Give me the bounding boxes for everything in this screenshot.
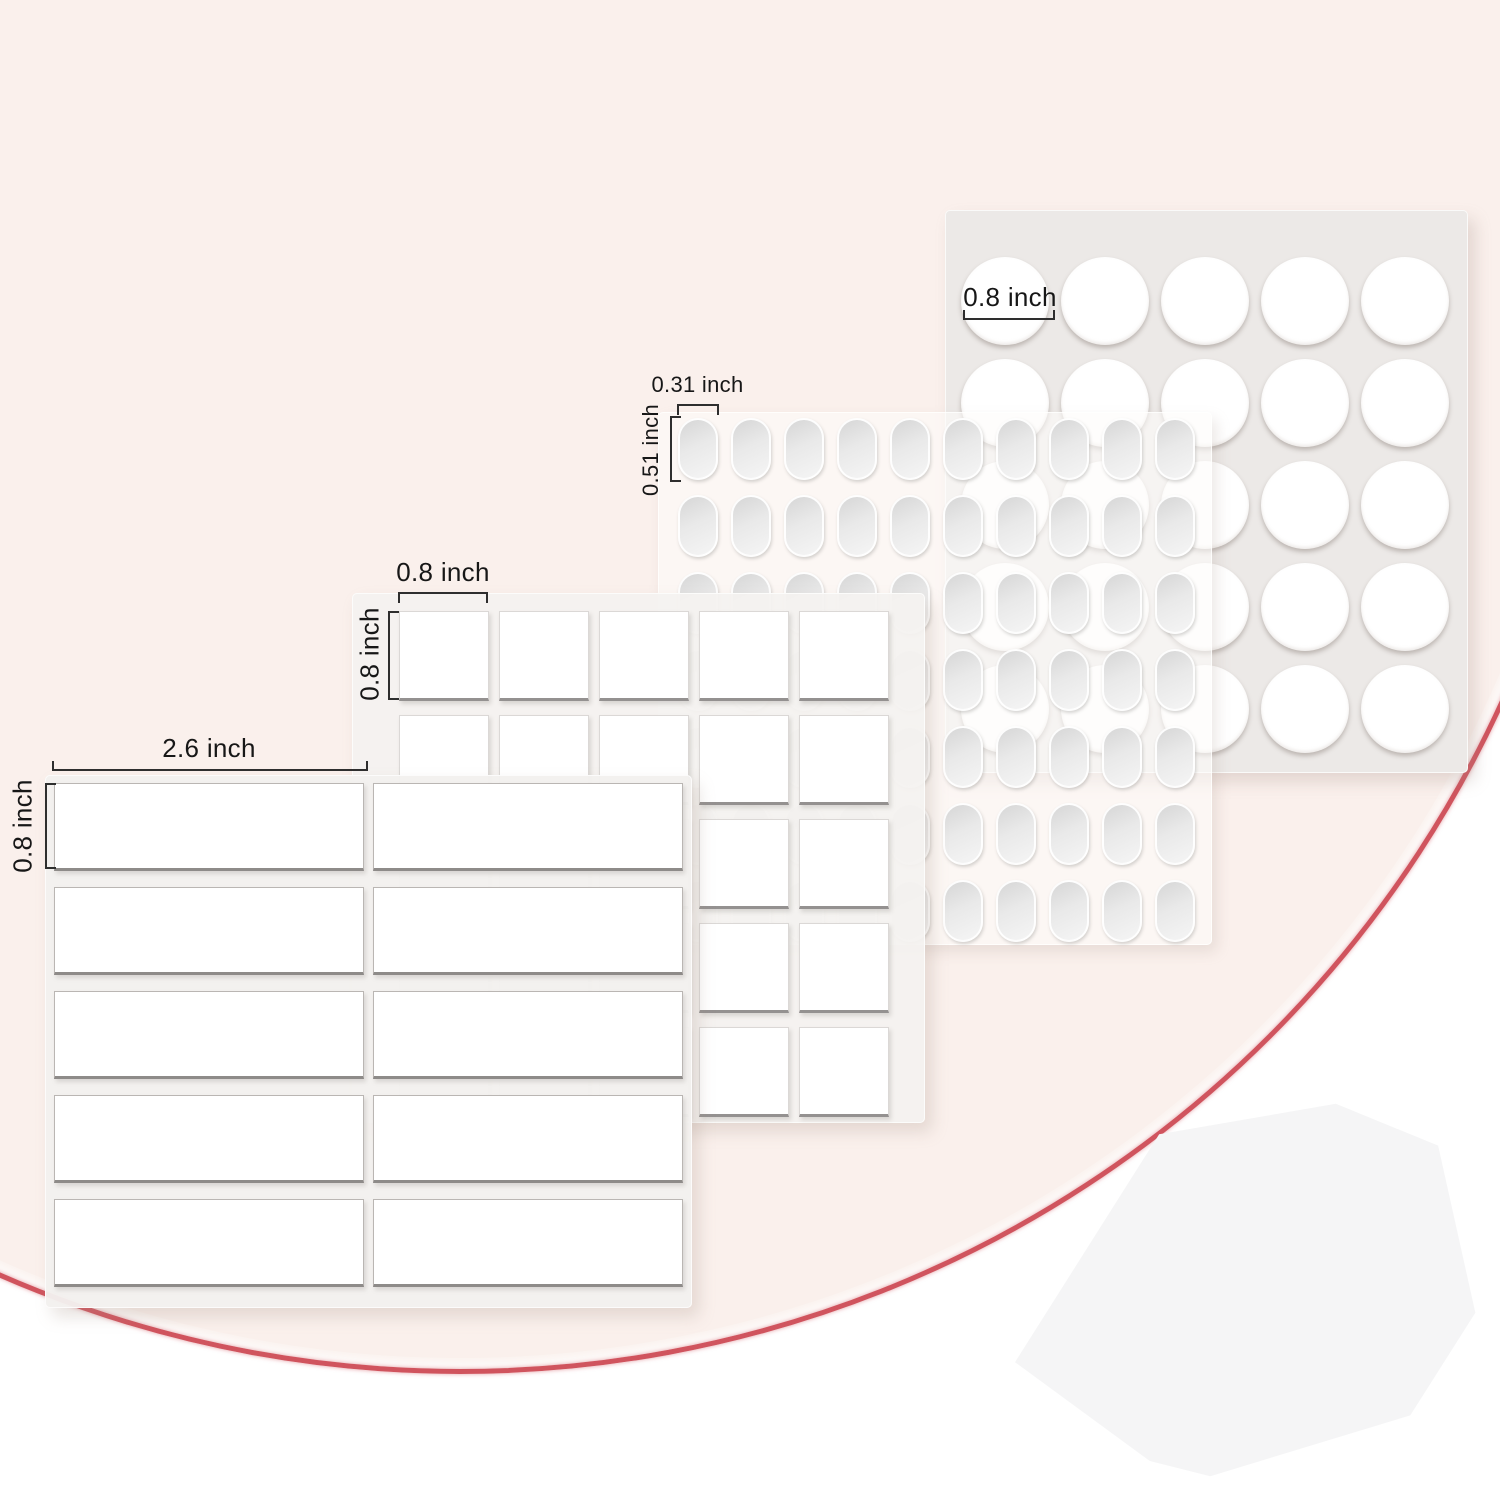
oval-height-measure-line: [670, 416, 672, 482]
rectangle-sticker: [373, 991, 683, 1079]
square-sticker: [599, 611, 689, 701]
oval-sticker: [731, 495, 771, 557]
oval-sticker: [943, 495, 983, 557]
strip-width-label: 2.6 inch: [52, 733, 366, 764]
oval-sticker: [1155, 572, 1195, 634]
oval-sticker: [943, 880, 983, 942]
rectangle-sticker: [54, 783, 364, 871]
circle-sticker: [1361, 359, 1449, 447]
square-width-label: 0.8 inch: [395, 557, 491, 588]
square-sticker: [699, 1027, 789, 1117]
oval-sticker: [1155, 495, 1195, 557]
oval-width-measure-line: [677, 404, 719, 406]
square-sticker: [799, 923, 889, 1013]
oval-height-label: 0.51 inch: [638, 404, 664, 496]
rectangle-sticker: [373, 783, 683, 871]
oval-sticker: [1155, 880, 1195, 942]
square-sticker: [699, 611, 789, 701]
square-height-measure-line: [388, 611, 390, 700]
oval-width-label: 0.31 inch: [645, 372, 750, 398]
circle-sticker: [1261, 359, 1349, 447]
circle-diameter-label: 0.8 inch: [958, 282, 1062, 313]
rectangle-sticker: [54, 1199, 364, 1287]
oval-sticker: [996, 880, 1036, 942]
oval-sticker: [1049, 880, 1089, 942]
square-height-label: 0.8 inch: [355, 607, 386, 700]
rectangle-sticker: [373, 887, 683, 975]
oval-sticker: [1155, 649, 1195, 711]
oval-sticker: [996, 418, 1036, 480]
circle-sticker: [1261, 461, 1349, 549]
circle-sticker: [1061, 257, 1149, 345]
oval-sticker: [996, 726, 1036, 788]
square-sticker: [399, 611, 489, 701]
sheet-strip-stickers: [45, 775, 692, 1308]
oval-sticker: [996, 803, 1036, 865]
oval-sticker: [996, 572, 1036, 634]
rectangle-sticker: [54, 991, 364, 1079]
strip-height-measure-line: [45, 783, 47, 869]
oval-sticker: [1155, 803, 1195, 865]
circle-sticker: [1161, 257, 1249, 345]
strip-sticker-grid: [46, 776, 691, 1287]
oval-sticker: [1102, 726, 1142, 788]
oval-sticker: [1049, 572, 1089, 634]
oval-sticker: [1049, 803, 1089, 865]
oval-sticker: [837, 495, 877, 557]
oval-sticker: [996, 495, 1036, 557]
oval-sticker: [1049, 726, 1089, 788]
oval-sticker: [1102, 495, 1142, 557]
oval-sticker: [784, 495, 824, 557]
square-sticker: [699, 819, 789, 909]
oval-sticker: [943, 572, 983, 634]
oval-sticker: [1155, 418, 1195, 480]
oval-sticker: [837, 418, 877, 480]
rectangle-sticker: [373, 1199, 683, 1287]
square-sticker: [799, 611, 889, 701]
square-sticker: [799, 1027, 889, 1117]
oval-sticker: [996, 649, 1036, 711]
rectangle-sticker: [54, 1095, 364, 1183]
oval-sticker: [943, 649, 983, 711]
strip-height-label: 0.8 inch: [8, 779, 39, 872]
oval-sticker: [943, 726, 983, 788]
circle-diameter-measure-line: [963, 318, 1055, 320]
circle-sticker: [1261, 563, 1349, 651]
square-sticker: [499, 611, 589, 701]
oval-sticker: [1049, 649, 1089, 711]
oval-sticker: [1102, 803, 1142, 865]
oval-sticker: [943, 418, 983, 480]
square-sticker: [699, 715, 789, 805]
strip-width-measure-line: [52, 769, 368, 771]
oval-sticker: [890, 418, 930, 480]
circle-sticker: [1261, 665, 1349, 753]
oval-sticker: [1155, 726, 1195, 788]
square-width-measure-line: [398, 592, 488, 594]
oval-sticker: [943, 803, 983, 865]
oval-sticker: [784, 418, 824, 480]
rectangle-sticker: [373, 1095, 683, 1183]
oval-sticker: [1102, 880, 1142, 942]
oval-sticker: [890, 495, 930, 557]
circle-sticker: [1361, 665, 1449, 753]
rectangle-sticker: [54, 887, 364, 975]
circle-sticker: [1261, 257, 1349, 345]
square-sticker: [699, 923, 789, 1013]
oval-sticker: [1049, 418, 1089, 480]
oval-sticker: [1049, 495, 1089, 557]
oval-sticker: [678, 418, 718, 480]
oval-sticker: [1102, 649, 1142, 711]
circle-sticker: [1361, 257, 1449, 345]
product-size-showcase: 0.8 inch 0.31 inch 0.51 inch 0.8 inch 0.…: [0, 0, 1500, 1500]
circle-sticker: [1361, 563, 1449, 651]
circle-sticker: [1361, 461, 1449, 549]
oval-sticker: [731, 418, 771, 480]
square-sticker: [799, 819, 889, 909]
oval-sticker: [1102, 572, 1142, 634]
oval-sticker: [678, 495, 718, 557]
oval-sticker: [1102, 418, 1142, 480]
square-sticker: [799, 715, 889, 805]
